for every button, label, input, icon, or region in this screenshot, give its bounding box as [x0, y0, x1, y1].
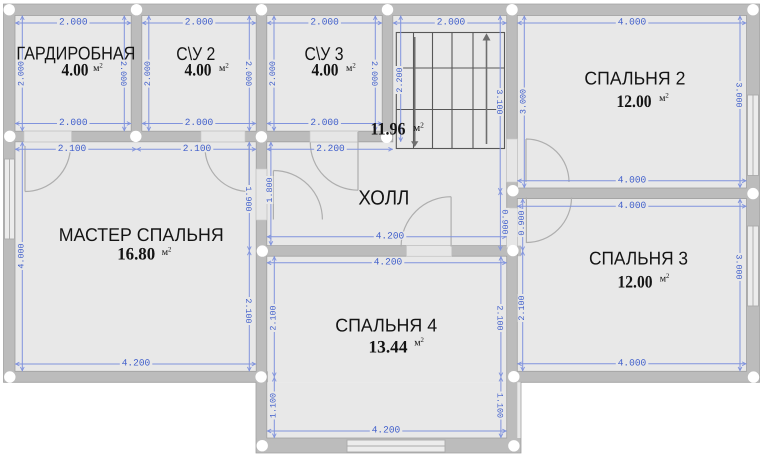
- svg-text:2.000: 2.000: [310, 17, 339, 28]
- svg-text:2.000: 2.000: [437, 17, 466, 28]
- svg-text:4.000: 4.000: [618, 174, 647, 185]
- svg-text:2.100: 2.100: [183, 143, 212, 154]
- svg-text:4.200: 4.200: [122, 358, 151, 369]
- svg-text:2.000: 2.000: [59, 17, 88, 28]
- svg-text:4.000: 4.000: [618, 357, 647, 368]
- svg-text:4.00: 4.00: [312, 60, 339, 80]
- svg-text:3.000: 3.000: [734, 254, 744, 279]
- svg-text:1.100: 1.100: [269, 393, 279, 418]
- svg-text:МАСТЕР СПАЛЬНЯ: МАСТЕР СПАЛЬНЯ: [59, 224, 224, 245]
- svg-text:2.100: 2.100: [58, 143, 87, 154]
- svg-text:11.96: 11.96: [371, 119, 406, 139]
- svg-text:4.00: 4.00: [62, 60, 89, 80]
- svg-text:3.000: 3.000: [519, 89, 529, 114]
- svg-text:2.100: 2.100: [269, 305, 279, 330]
- svg-text:12.00: 12.00: [618, 272, 653, 292]
- svg-text:2.200: 2.200: [316, 143, 345, 154]
- svg-text:1.100: 1.100: [495, 393, 505, 418]
- svg-text:2.100: 2.100: [495, 305, 505, 330]
- svg-text:1.900: 1.900: [243, 186, 253, 211]
- svg-text:2.000: 2.000: [59, 117, 88, 128]
- svg-text:3.000: 3.000: [734, 82, 744, 107]
- svg-text:СПАЛЬНЯ 2: СПАЛЬНЯ 2: [584, 68, 685, 89]
- svg-text:СПАЛЬНЯ 4: СПАЛЬНЯ 4: [335, 315, 437, 336]
- svg-text:2.100: 2.100: [517, 295, 527, 320]
- svg-text:2.000: 2.000: [185, 17, 214, 28]
- svg-text:13.44: 13.44: [369, 337, 408, 357]
- svg-text:2.000: 2.000: [16, 61, 26, 86]
- svg-text:4.000: 4.000: [618, 17, 647, 28]
- svg-text:3.100: 3.100: [494, 89, 504, 114]
- svg-text:16.80: 16.80: [117, 244, 155, 264]
- svg-text:1.800: 1.800: [265, 177, 275, 202]
- svg-text:2.000: 2.000: [118, 61, 128, 86]
- svg-text:4.200: 4.200: [372, 425, 401, 436]
- svg-text:2.000: 2.000: [143, 61, 153, 86]
- svg-text:4.200: 4.200: [376, 230, 405, 241]
- svg-text:2.100: 2.100: [243, 298, 253, 323]
- svg-text:0.900: 0.900: [500, 209, 510, 234]
- svg-text:4.200: 4.200: [374, 256, 403, 267]
- svg-text:2.000: 2.000: [185, 117, 214, 128]
- svg-text:2.000: 2.000: [310, 117, 339, 128]
- svg-text:ХОЛЛ: ХОЛЛ: [358, 187, 409, 210]
- svg-text:12.00: 12.00: [617, 91, 652, 111]
- svg-text:4.000: 4.000: [17, 243, 27, 268]
- svg-text:4.00: 4.00: [185, 60, 212, 80]
- svg-text:0.900: 0.900: [517, 210, 527, 235]
- svg-text:2.000: 2.000: [243, 61, 253, 86]
- svg-text:СПАЛЬНЯ 3: СПАЛЬНЯ 3: [589, 248, 688, 269]
- svg-text:2.200: 2.200: [395, 67, 405, 92]
- svg-text:2.000: 2.000: [268, 61, 278, 86]
- svg-text:4.000: 4.000: [618, 200, 647, 211]
- svg-text:2.000: 2.000: [369, 61, 379, 86]
